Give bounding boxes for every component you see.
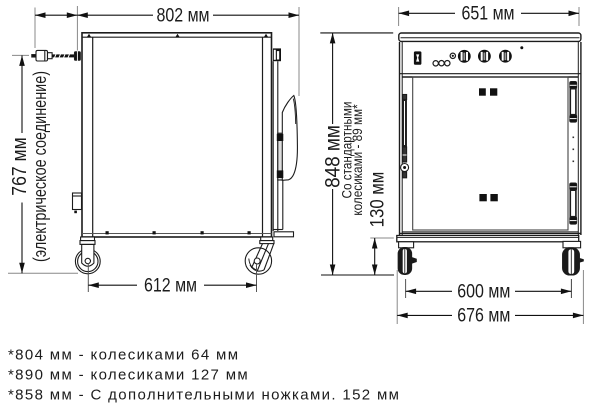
- svg-text:767 мм: 767 мм: [8, 137, 30, 195]
- svg-text:651 мм: 651 мм: [461, 2, 514, 24]
- svg-text:(электрическое соединение): (электрическое соединение): [29, 71, 50, 262]
- svg-text:130 мм: 130 мм: [366, 172, 387, 228]
- svg-text:676 мм: 676 мм: [457, 304, 510, 326]
- svg-text:802 мм: 802 мм: [156, 4, 209, 26]
- svg-text:*858 мм - С дополнительными но: *858 мм - С дополнительными ножками. 152…: [8, 387, 400, 404]
- svg-text:612 мм: 612 мм: [144, 274, 197, 296]
- svg-text:колесиками - 89 мм*: колесиками - 89 мм*: [349, 104, 365, 215]
- svg-text:*804 мм - колесиками 64 мм: *804 мм - колесиками 64 мм: [8, 347, 239, 364]
- svg-text:*890 мм - колесиками 127 мм: *890 мм - колесиками 127 мм: [8, 367, 249, 384]
- svg-text:600 мм: 600 мм: [457, 280, 510, 302]
